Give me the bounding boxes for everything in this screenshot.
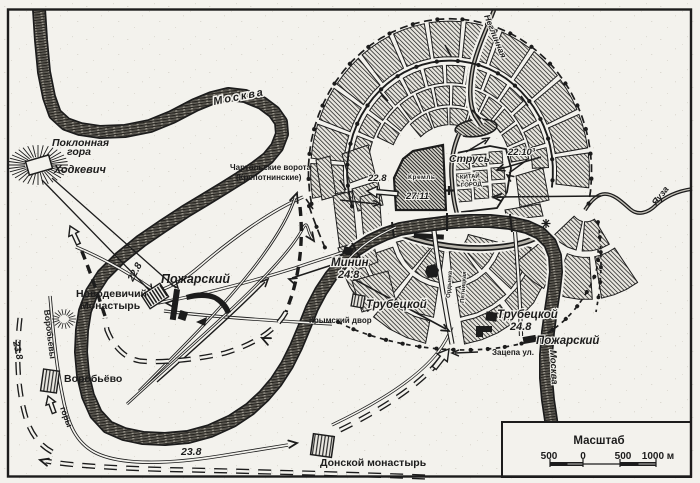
svg-text:Крымский двор: Крымский двор (309, 316, 372, 325)
svg-text:27.11: 27.11 (405, 191, 429, 202)
svg-text:гора: гора (67, 146, 91, 158)
svg-text:Трубецкой: Трубецкой (366, 299, 427, 311)
svg-text:24.8: 24.8 (337, 269, 360, 281)
svg-text:(Крепотнинские): (Крепотнинские) (236, 173, 302, 182)
svg-text:Чартольские ворота: Чартольские ворота (230, 163, 312, 172)
svg-text:Трубецкой: Трубецкой (497, 309, 558, 321)
svg-text:Пожарский: Пожарский (161, 272, 230, 286)
svg-text:22.8: 22.8 (367, 173, 387, 184)
svg-text:Зацепа ул.: Зацепа ул. (492, 348, 534, 357)
svg-text:24.8: 24.8 (509, 321, 532, 333)
svg-text:Кремль: Кремль (408, 174, 435, 181)
svg-text:Минин: Минин (331, 257, 369, 269)
svg-text:22.10³: 22.10³ (507, 147, 536, 158)
svg-text:500: 500 (541, 451, 558, 462)
svg-text:Масштаб: Масштаб (573, 435, 624, 447)
svg-text:23.8: 23.8 (180, 446, 202, 458)
svg-text:Воробьёво: Воробьёво (64, 373, 122, 385)
svg-text:Ходкевич: Ходкевич (53, 164, 106, 176)
svg-text:Москва: Москва (547, 350, 560, 385)
svg-text:Монастырь: Монастырь (80, 300, 141, 312)
svg-text:Новодевичий: Новодевичий (76, 288, 147, 300)
svg-text:Пожарский: Пожарский (536, 335, 599, 347)
svg-text:500: 500 (615, 451, 632, 462)
svg-text:Струсь: Струсь (449, 153, 490, 165)
svg-text:Донской монастырь: Донской монастырь (320, 457, 427, 469)
svg-text:1000 м: 1000 м (642, 451, 674, 462)
